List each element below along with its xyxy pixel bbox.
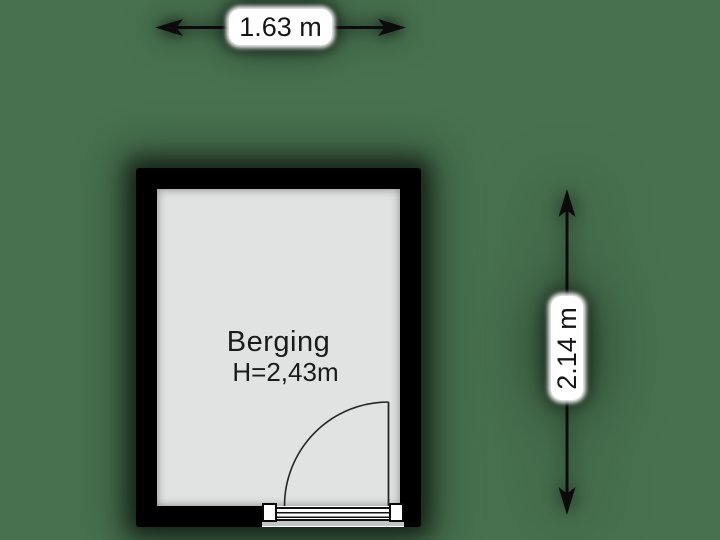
room-ceiling-height-label: H=2,43m [164,358,407,386]
arrow-right-head-icon [378,19,406,36]
width-dimension-value: 1.63 m [239,12,322,43]
door-post-right-icon [389,503,404,522]
height-dimension-label-box: 2.14 m [551,296,583,400]
arrow-up-head-icon [559,189,576,217]
room-name-label: Berging [157,327,400,358]
door-sill-icon [277,507,389,521]
door-post-left-icon [262,503,277,522]
width-dimension-label-box: 1.63 m [229,9,332,45]
arrow-left-head-icon [155,19,183,36]
floorplan-canvas: Berging H=2,43m 1.63 m 2.14 m [0,0,720,540]
door-threshold-outer-edge [262,521,404,526]
room-label-block: Berging H=2,43m [157,327,400,386]
arrow-down-head-icon [559,487,576,515]
height-dimension-value: 2.14 m [552,307,583,390]
